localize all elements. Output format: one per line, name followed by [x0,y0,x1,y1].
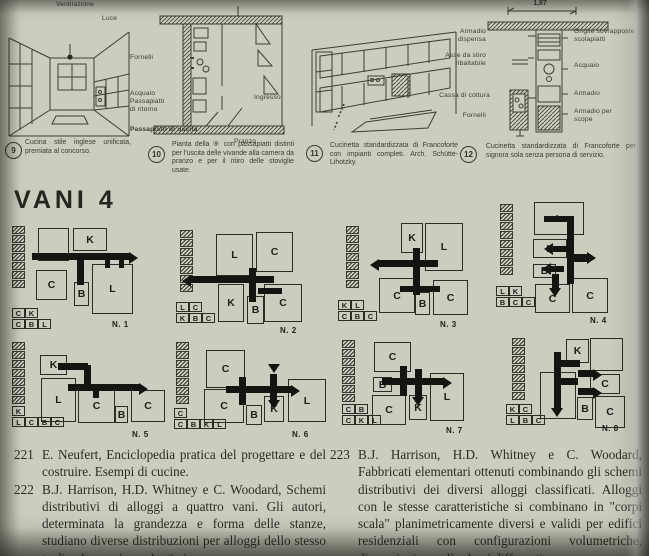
module-cell [12,369,25,377]
module-cell [12,253,25,261]
corridor-bar [84,365,91,385]
corridor-bar [400,286,440,292]
fig10-label-passapiatti: Passapiatti [130,98,164,106]
module-cell [342,376,355,384]
room-legend-cell: C [519,404,532,414]
room-legend-cell: K [509,286,522,296]
flow-arrow-icon [291,385,300,397]
module-cell [346,235,359,243]
vani-scheme: CCBKLCCBKLN. 6 [170,338,328,460]
module-cell [512,392,525,400]
flow-arrow-icon [129,252,138,264]
room-legend-cell: C [522,297,535,307]
corridor-bar [415,369,422,397]
bibliography-left-column: 221 E. Neufert, Enciclopedia pratica del… [14,446,326,556]
corridor-bar [552,274,559,288]
fig12-label-armadio-scope: Armadio per scope [574,108,620,124]
module-cell [12,360,25,368]
module-cell [180,266,193,274]
flow-arrow-icon [551,408,563,417]
room-legend-cell: K [355,415,368,425]
vani-scheme: CBLCKCBCKLN. 7 [330,336,488,458]
module-cell [342,367,355,375]
room-legend-cell: C [12,308,25,318]
scheme-number: N. 4 [590,316,607,325]
fig12-label-armadio: Armadio [574,90,634,98]
corridor-bar [226,386,292,393]
module-cell [342,340,355,348]
fig12-label-acquaio: Acquaio [574,62,634,70]
room: C [36,270,67,300]
flow-arrow-icon [268,400,280,409]
figure-12-caption: Cucinetta standardizzata di Francoforte … [486,143,636,160]
figure-number-badge: 11 [306,145,323,162]
module-cell [12,226,25,234]
fig9-label-luce: Luce [102,15,117,23]
vani-scheme: KCCLBKCLBCN. 8 [492,336,649,458]
corridor-bar [68,384,140,391]
module-cell [512,383,525,391]
scheme-number: N. 3 [440,320,457,329]
module-cell [500,213,513,221]
scheme-number: N. 7 [446,426,463,435]
room-legend-cell: C [532,415,545,425]
fig10-label-fornelli: Fornelli [130,54,153,62]
module-cell [12,396,25,404]
room-legend-cell: C [174,419,187,429]
module-cell [176,387,189,395]
room: L [92,264,133,314]
vani-scheme: KLCCBKLCBCN. 3 [330,220,488,342]
room-legend-cell: C [202,313,215,323]
corridor-bar [554,378,578,385]
module-cell [12,244,25,252]
fig12-label-armadio-dispensa: Armadio dispensa [442,28,486,44]
bibliography-entry: 223 B.J. Harrison, H.D. Whitney e C. Woo… [330,446,642,556]
module-cell [500,267,513,275]
figure-10-caption: Pianta della ⑨ con passapiatti distinti … [172,141,294,176]
fig9-label-ventilazione: Ventilazione [56,1,94,9]
flow-arrow-icon [370,259,379,271]
room: B [415,292,430,315]
corridor-bar [77,253,84,285]
room: B [246,405,262,425]
module-cell [12,235,25,243]
room-legend-cell: C [364,311,377,321]
module-cell [342,394,355,402]
scheme-number: N. 1 [112,320,129,329]
room-legend-cell: B [519,415,532,425]
room-legend-cell: B [351,311,364,321]
module-cell [12,351,25,359]
room: C [379,278,415,313]
corridor-bar [382,378,444,385]
module-cell [346,226,359,234]
flow-arrow-icon [593,369,602,381]
room-legend-cell: C [338,311,351,321]
corridor-bar [190,276,274,283]
module-cell [12,387,25,395]
module-cell [500,222,513,230]
fig10-label-ingresso: Ingresso [254,94,281,102]
room-legend-cell: C [12,319,25,329]
room-legend-cell: B [189,313,202,323]
room-legend-cell: L [368,415,381,425]
fig10-label-uscita: Passapiatti di uscita [130,126,198,134]
fig10-label-ritorno: di ritorno [130,106,158,114]
room-legend-cell: K [506,404,519,414]
room-legend-cell: L [176,302,189,312]
room-legend-cell: B [355,404,368,414]
vani-scheme: LCCKBLCKBCN. 2 [168,222,326,344]
figure-10: Fornelli Acquaio Passapiatti di ritorno … [130,2,302,152]
module-cell [176,342,189,350]
corridor-bar [119,256,124,268]
module-cell [342,358,355,366]
room-legend-cell: K [25,308,38,318]
module-cell [342,349,355,357]
flow-arrow-icon [182,275,191,287]
room-legend-cell: L [351,300,364,310]
corridor-bar [578,370,594,377]
vani-scheme: KLCBCKLCBCN. 5 [8,338,166,460]
corridor-bar [554,360,580,367]
kitchen-perspective-drawing [6,24,132,140]
entry-number: 223 [330,446,350,463]
module-cell [12,280,25,288]
module-cell [500,240,513,248]
module-cell [342,385,355,393]
flow-arrow-icon [443,377,452,389]
room-legend-cell: L [506,415,519,425]
module-cell [500,231,513,239]
corridor-bar [258,288,282,294]
entry-text: E. Neufert, Enciclopedia pratica del pro… [42,447,326,479]
corridor-bar [105,256,110,268]
module-cell [12,262,25,270]
room [590,338,623,371]
module-cell [176,369,189,377]
flow-arrow-icon [268,364,280,373]
entry-number: 222 [14,481,34,498]
bibliography-right-column: 223 B.J. Harrison, H.D. Whitney e C. Woo… [330,446,642,556]
room-legend-cell: C [25,417,38,427]
room: B [577,397,593,420]
module-cell [176,378,189,386]
section-heading-vani-4: VANI 4 [14,186,117,215]
fig12-label-asse-stiro: Asse da stiro ribaltabile [440,52,486,68]
figure-number-badge: 10 [148,146,165,163]
room: B [115,406,128,423]
entry-number: 221 [14,446,34,463]
module-cell [12,378,25,386]
figure-number-badge: 9 [5,142,22,159]
module-cell [346,262,359,270]
room-legend-cell: L [38,319,51,329]
flow-arrow-icon [542,263,551,275]
module-cell [180,257,193,265]
room-legend-cell: B [187,419,200,429]
figure-11-caption: Cucinetta standardizzata di Francoforte … [330,142,458,168]
fig12-label-fornelli: Fornelli [450,112,486,120]
room-legend-cell: C [342,404,355,414]
corridor-bar [239,377,246,405]
corridor-bar [378,260,438,267]
module-cell [346,253,359,261]
corridor-bar [249,268,256,302]
flow-arrow-icon [549,288,561,297]
module-cell [180,230,193,238]
room-legend-cell: K [338,300,351,310]
bibliography-entry: 222 B.J. Harrison, H.D. Whitney e C. Woo… [14,481,326,556]
module-cell [176,360,189,368]
entry-text: B.J. Harrison, H.D. Whitney e C. Woodard… [42,482,326,556]
room-legend-cell: L [496,286,509,296]
module-cell [346,280,359,288]
module-cell [346,244,359,252]
room-legend-cell: K [200,419,213,429]
vani-scheme: KCBLCKCBLN. 1 [8,222,166,344]
flow-arrow-icon [544,243,553,255]
module-cell [512,356,525,364]
room-legend-cell: B [25,319,38,329]
room-legend-cell: C [174,408,187,418]
scheme-number: N. 2 [280,326,297,335]
module-cell [12,342,25,350]
scheme-number: N. 5 [132,430,149,439]
room-legend-cell: C [342,415,355,425]
room: L [216,234,253,276]
entry-text: B.J. Harrison, H.D. Whitney e C. Woodard… [358,447,642,556]
book-page: Ventilazione Luce 9 Cucina stile inglese… [0,0,649,556]
room-legend-cell: B [496,297,509,307]
room: K [73,228,107,251]
module-cell [12,271,25,279]
room: C [572,278,608,313]
module-cell [180,248,193,256]
room-legend-cell: K [176,313,189,323]
room-legend-cell: L [12,417,25,427]
room: C [256,232,293,272]
module-cell [176,351,189,359]
module-cell [346,271,359,279]
corridor-bar [270,374,277,400]
kitchen-perspective-drawing [308,26,460,140]
fig12-label-griglie: Griglie sovrapposte scolapiatti [574,28,646,44]
corridor-bar [567,222,574,284]
flow-arrow-icon [412,397,424,406]
corridor-bar [574,254,588,262]
room-legend-cell: B [38,417,51,427]
flow-arrow-icon [587,252,596,264]
flow-arrow-icon [593,387,602,399]
room-legend-cell: K [12,406,25,416]
room-legend-cell: C [189,302,202,312]
kitchen-plan-drawing [146,6,298,142]
module-cell [500,258,513,266]
module-cell [512,347,525,355]
corridor-bar [544,216,574,222]
scheme-number: N. 8 [602,424,619,433]
module-cell [500,204,513,212]
module-cell [512,365,525,373]
room: B [74,282,89,306]
module-cell [180,239,193,247]
module-cell [176,396,189,404]
room: K [218,284,244,322]
flow-arrow-icon [139,383,148,395]
corridor-bar [578,388,594,395]
room-legend-cell: C [509,297,522,307]
fig10-label-acquaio: Acquaio [130,90,155,98]
fig12-label-cassa-cottura: Cassa di cottura [432,92,490,100]
figure-12: 1,87 Armadio dispensa Asse da sti [440,0,649,176]
room-legend-cell: C [51,417,64,427]
figure-9-caption: Cucina stile inglese unificata, premiata… [25,139,131,156]
corridor-bar [552,246,568,252]
vani-scheme: LKBCCLKBCCN. 4 [492,202,649,324]
module-cell [512,338,525,346]
corridor-bar [550,266,564,272]
room: C [131,390,165,422]
scheme-number: N. 6 [292,430,309,439]
corridor-bar [400,366,407,396]
room: C [204,389,244,423]
corridor-bar [93,388,99,398]
room-legend-cell: L [213,419,226,429]
module-cell [500,249,513,257]
module-cell [512,374,525,382]
bibliography-entry: 221 E. Neufert, Enciclopedia pratica del… [14,446,326,481]
figure-number-badge: 12 [460,146,477,163]
